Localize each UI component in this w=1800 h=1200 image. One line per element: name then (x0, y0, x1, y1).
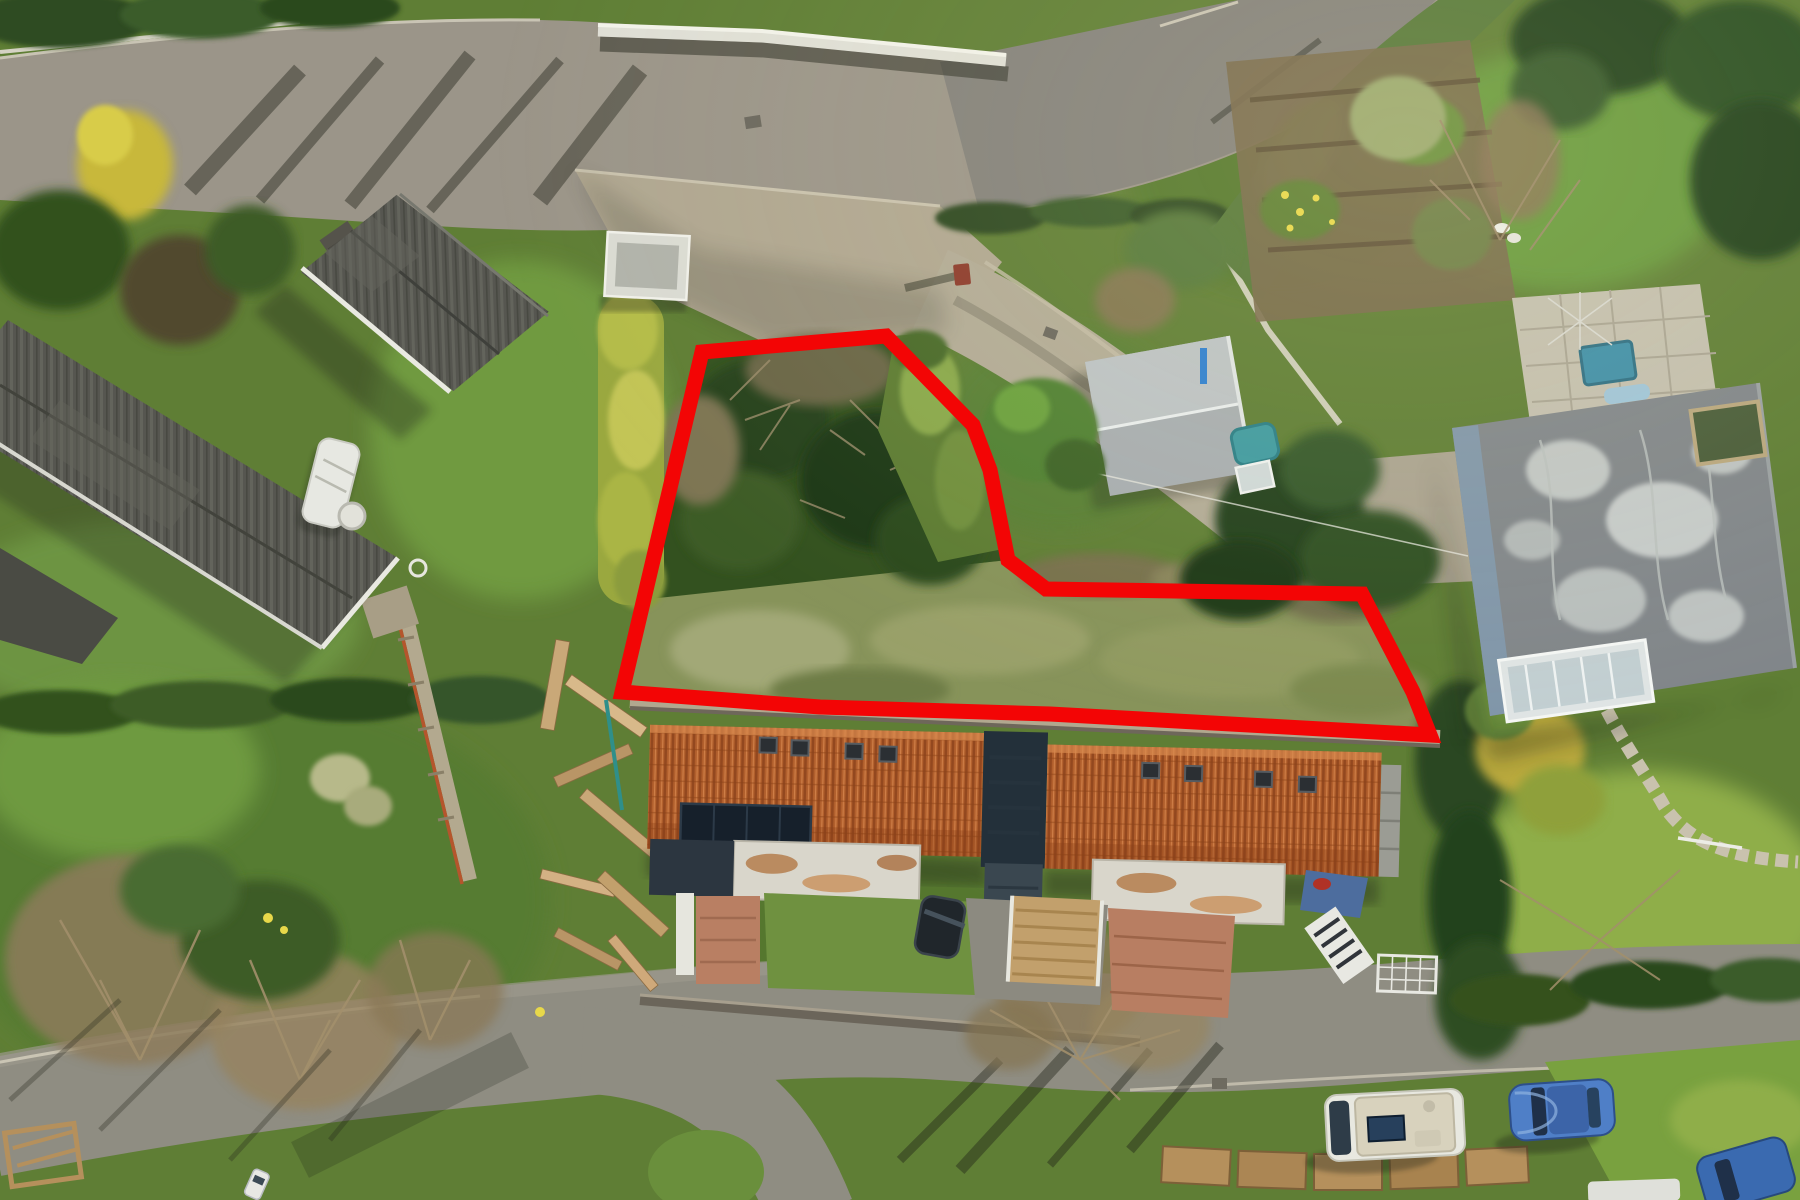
aerial-photo-canvas: Aerial drone photograph of an overgrown … (0, 0, 1800, 1200)
sunlight-overlay (0, 0, 1800, 1200)
aerial-photo: Aerial drone photograph of an overgrown … (0, 0, 1800, 1200)
